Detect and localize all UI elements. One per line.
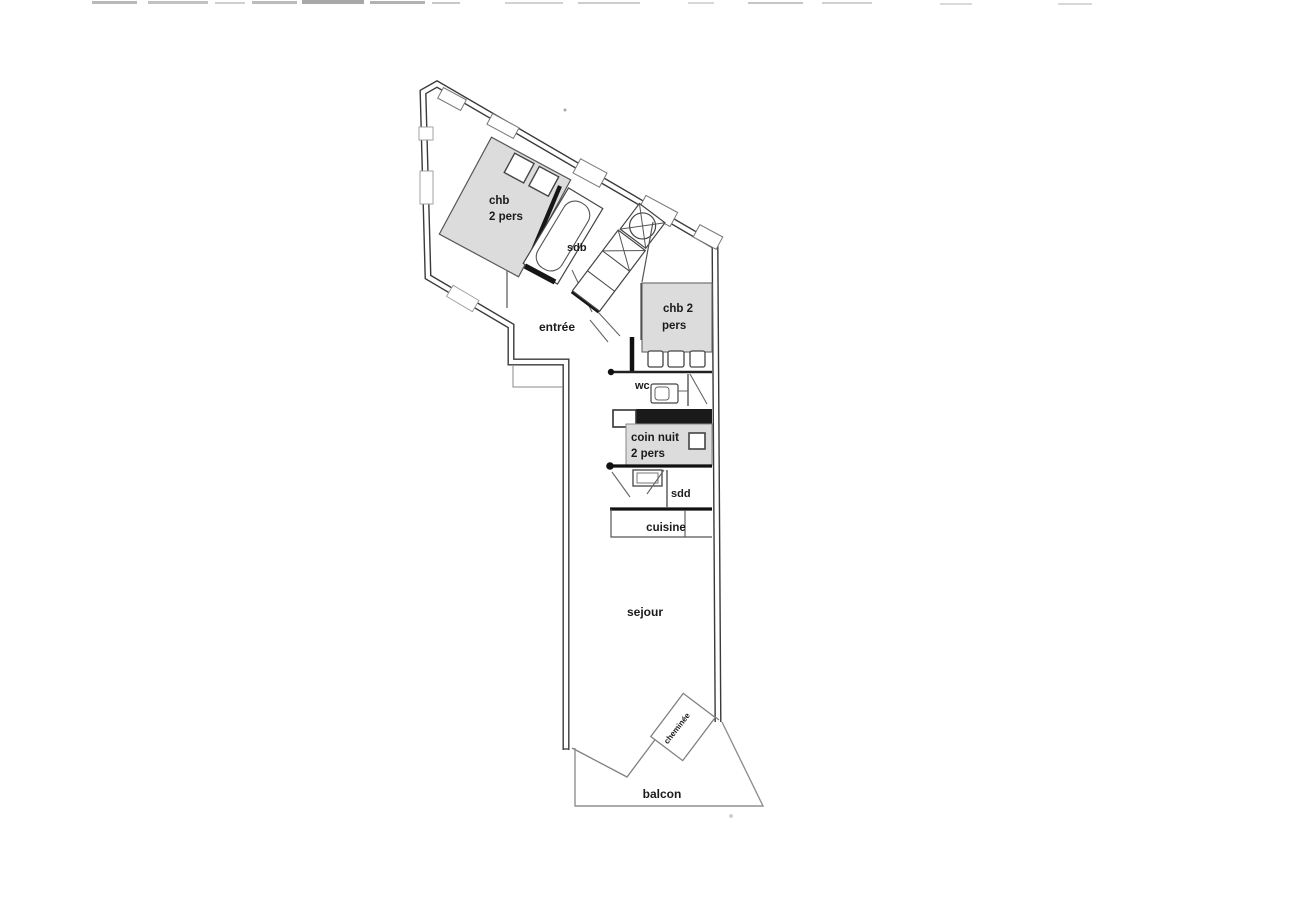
door-hinge-dot — [606, 462, 614, 470]
bedside-table-symbol — [689, 433, 705, 449]
apartment-floor-plan: chb 2 pers sdb entrée chb 2 pers wc coin… — [0, 0, 1300, 900]
window-symbol — [447, 285, 479, 311]
pillow-symbol — [690, 351, 705, 367]
wc-fixtures — [608, 369, 712, 406]
label-bedroom2-line2: pers — [662, 320, 686, 332]
label-bathroom: sdb — [567, 242, 587, 254]
label-wc: wc — [634, 380, 650, 392]
label-bedroom1-line2: 2 pers — [489, 211, 523, 223]
pillow-symbol — [648, 351, 663, 367]
label-shower-room: sdd — [671, 488, 691, 500]
label-kitchen: cuisine — [646, 522, 686, 534]
door-swing-line — [590, 320, 608, 342]
floor-plan-page: chb 2 pers sdb entrée chb 2 pers wc coin… — [0, 0, 1300, 900]
door-swing-line — [690, 374, 707, 404]
label-living-room: sejour — [627, 605, 663, 619]
label-bedroom1-line1: chb — [489, 195, 509, 207]
label-entrance: entrée — [539, 320, 575, 334]
double-bed-symbol-bedroom2 — [642, 283, 712, 352]
window-symbol — [487, 114, 519, 139]
label-bedroom2-line1: chb 2 — [663, 303, 693, 315]
wardrobe-symbol — [636, 409, 712, 424]
step-wall-detail — [513, 366, 563, 387]
door-swing-line — [598, 312, 620, 336]
window-symbol — [420, 171, 433, 204]
label-sleeping-nook-line1: coin nuit — [631, 432, 679, 444]
door-swing-line — [612, 472, 630, 497]
window-symbol — [419, 127, 433, 140]
scan-artifacts — [92, 0, 1092, 818]
label-balcony: balcon — [643, 787, 682, 801]
living-room-bay-line — [572, 737, 657, 777]
label-sleeping-nook-line2: 2 pers — [631, 448, 665, 460]
door-hinge-dot — [608, 369, 614, 375]
pillow-symbol — [668, 351, 684, 367]
window-symbol — [573, 159, 607, 187]
shower-room-fixtures — [612, 470, 667, 507]
